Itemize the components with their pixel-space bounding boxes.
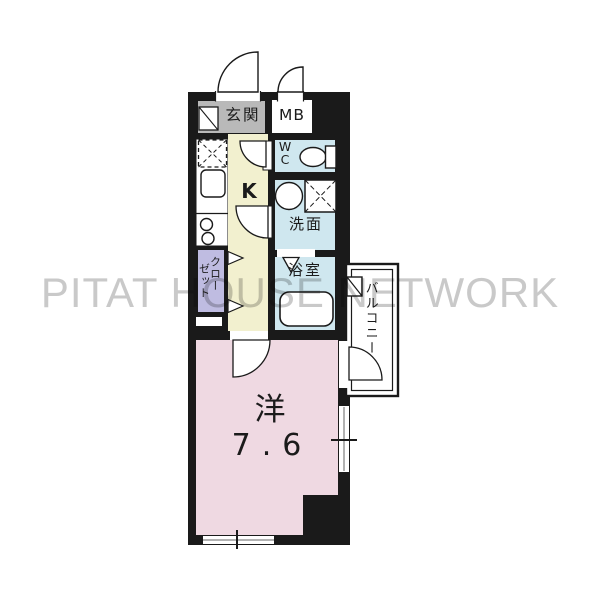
kitchen-sink xyxy=(201,170,225,197)
meter-box-label: MB xyxy=(272,107,312,123)
refrigerator-space-symbol xyxy=(199,140,227,167)
bathtub-symbol xyxy=(280,292,333,326)
wall-niche xyxy=(196,317,222,326)
kitchen-room-threshold xyxy=(230,331,268,340)
room-type-label: 洋 xyxy=(247,394,293,427)
toilet-label-line2: C xyxy=(277,153,293,166)
shoe-cabinet-symbol xyxy=(199,107,218,130)
meter-box-door-swing xyxy=(278,67,303,92)
bathroom-label: 浴室 xyxy=(280,263,330,279)
toilet-symbol xyxy=(300,146,336,168)
entrance-threshold xyxy=(215,92,261,101)
washroom-label: 洗面 xyxy=(281,217,331,233)
balcony-label: バルコニー xyxy=(363,281,377,356)
washbasin-symbol xyxy=(276,183,303,210)
entrance-door-swing xyxy=(218,52,258,92)
closet-label-right-column: クロー xyxy=(209,256,221,292)
washing-machine-space-symbol xyxy=(305,180,336,212)
entrance-label: 玄関 xyxy=(219,107,267,123)
floorplan-drawing xyxy=(0,0,600,600)
balcony-door-opening xyxy=(339,341,349,388)
stove-burner-1 xyxy=(201,219,213,231)
closet-label-left-column: ゼット xyxy=(198,263,210,299)
stove-burner-2 xyxy=(202,233,214,245)
washroom-bathroom-threshold xyxy=(277,249,315,258)
room-size-label: 7.6 xyxy=(222,430,322,462)
floorplan-image: 玄関 MB W C K 洗面 浴室 クロー ゼット バルコニー 洋 7.6 PI… xyxy=(0,0,600,600)
kitchen-label: K xyxy=(236,181,262,202)
meter-box-threshold xyxy=(277,92,304,101)
toilet-label: W C xyxy=(277,140,293,166)
